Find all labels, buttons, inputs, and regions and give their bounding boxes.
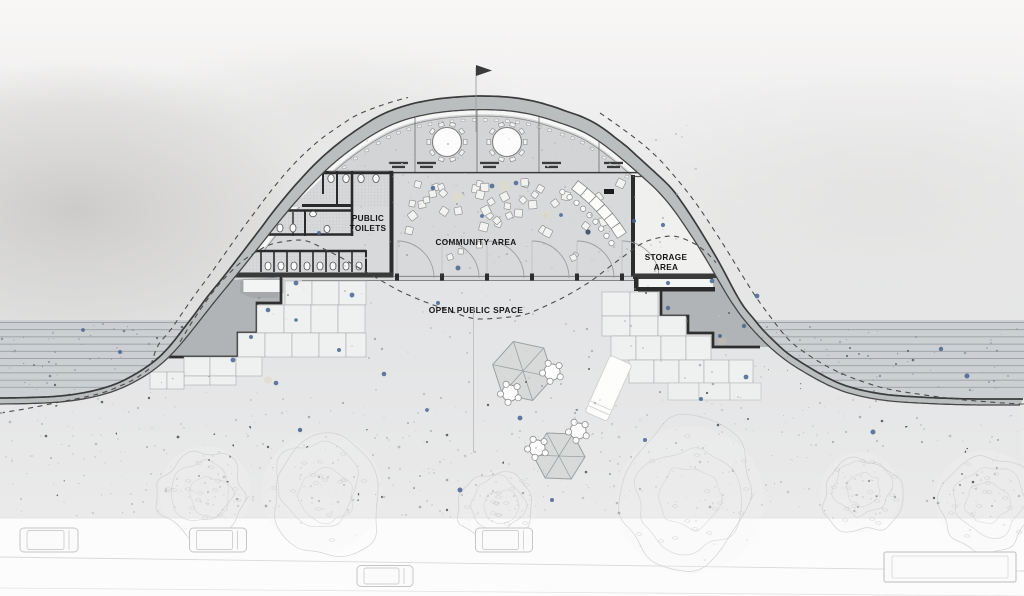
svg-text:PUBLIC: PUBLIC	[352, 214, 384, 223]
svg-text:COMMUNITY AREA: COMMUNITY AREA	[435, 238, 516, 247]
svg-text:STORAGE: STORAGE	[645, 253, 688, 262]
svg-text:AREA: AREA	[654, 263, 678, 272]
svg-text:TOILETS: TOILETS	[350, 224, 387, 233]
svg-text:OPEN PUBLIC SPACE: OPEN PUBLIC SPACE	[429, 305, 524, 315]
